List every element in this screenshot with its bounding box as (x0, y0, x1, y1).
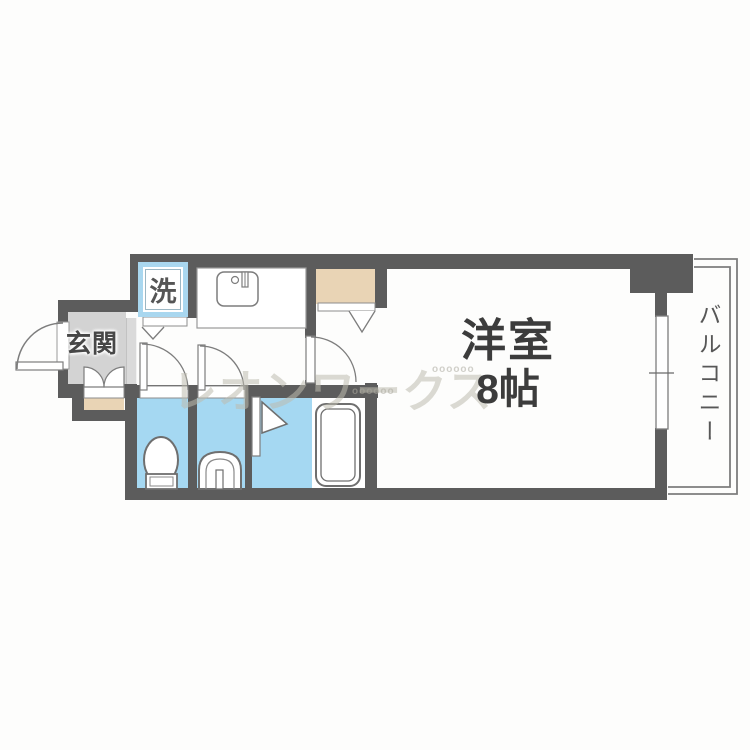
main-room-label: 洋室 8帖 (417, 317, 599, 410)
entrance-label: 玄関 (66, 324, 128, 360)
washbasin-faucet-icon (216, 470, 223, 489)
toilet-tank-icon (146, 474, 177, 489)
bathtub-icon (316, 404, 360, 486)
shoe-cabinet-door-arc-icon (104, 367, 124, 387)
laundry-label: 洗 (150, 270, 177, 309)
main-room-size: 8帖 (417, 369, 599, 410)
room-door-leaf (306, 336, 315, 383)
washing-machine-space: 洗 (138, 262, 188, 317)
faucet-knob-icon (232, 277, 239, 284)
closet-door-panel (318, 303, 375, 311)
bath-door-bar (252, 397, 260, 456)
washing-machine-space-inner: 洗 (145, 269, 181, 310)
shoe-cabinet (84, 386, 124, 398)
washbasin-door-leaf (198, 345, 205, 390)
laundry-folding-door-icon (142, 327, 164, 339)
washbasin-door-swing-arc-icon (200, 346, 244, 390)
shoe-cabinet-door-arc-icon (84, 367, 104, 387)
floorplan-canvas: レオンワークス oooooo oooooo 玄関 洗 洋室 8帖 バルコニー (0, 0, 750, 750)
toilet-door-leaf (140, 343, 147, 390)
entrance-door-leaf (16, 362, 63, 370)
main-room-name: 洋室 (417, 317, 599, 364)
closet-folding-door-icon (349, 311, 375, 332)
laundry-door-panel (143, 317, 187, 326)
fixtures-layer (0, 0, 750, 750)
bath-folding-door-icon (262, 402, 287, 433)
toilet-door-swing-arc-icon (142, 344, 188, 390)
room-door-swing-arc-icon (311, 337, 356, 382)
balcony-label: バルコニー (691, 303, 725, 473)
